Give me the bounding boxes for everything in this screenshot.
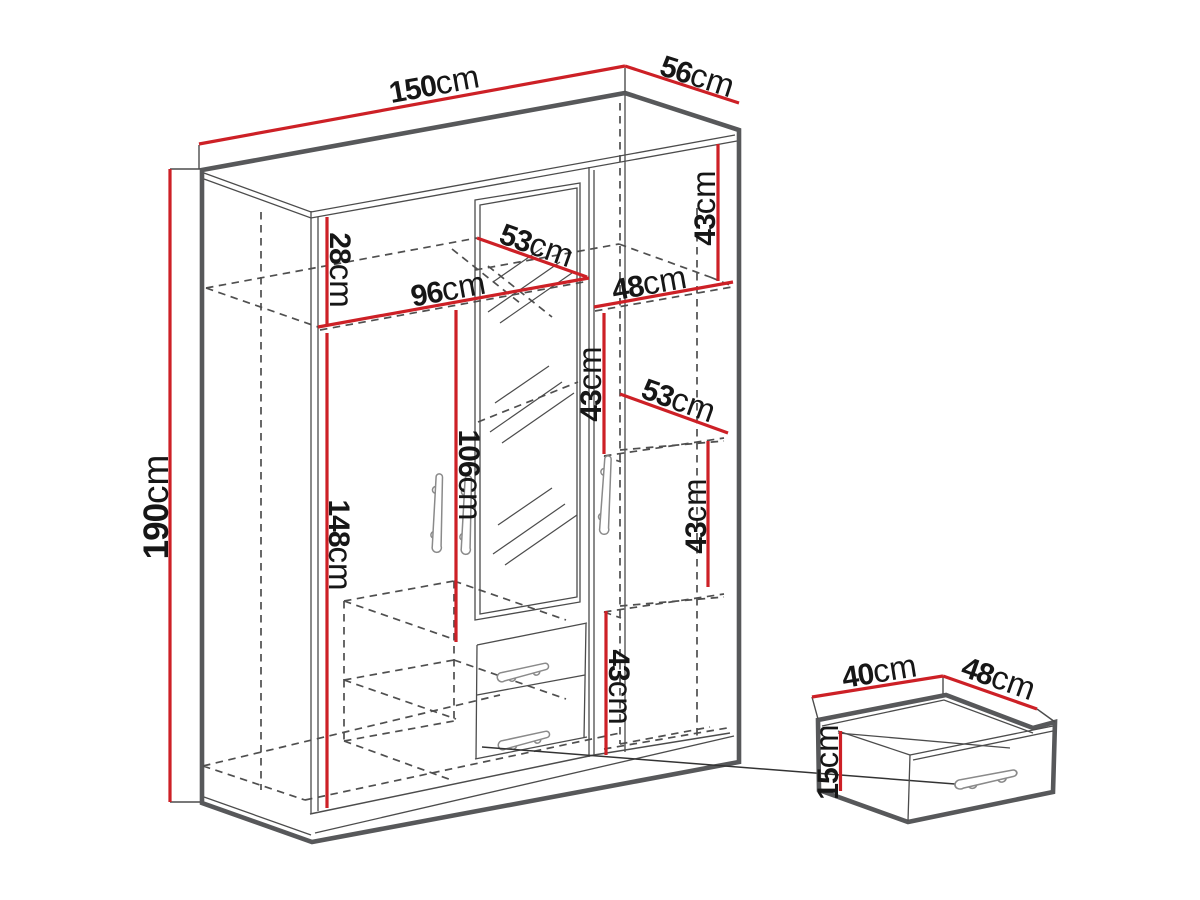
svg-text:43cm: 43cm (571, 346, 608, 421)
svg-text:28cm: 28cm (323, 232, 360, 307)
svg-text:43cm: 43cm (602, 649, 639, 724)
svg-text:190cm: 190cm (135, 455, 176, 560)
svg-text:15cm: 15cm (808, 724, 845, 799)
svg-text:96cm: 96cm (408, 264, 489, 314)
svg-text:48cm: 48cm (957, 647, 1040, 707)
svg-text:43cm: 43cm (676, 478, 713, 553)
svg-text:40cm: 40cm (839, 646, 919, 694)
svg-text:43cm: 43cm (685, 170, 722, 245)
svg-text:53cm: 53cm (637, 369, 720, 429)
svg-text:106cm: 106cm (452, 429, 489, 520)
svg-text:150cm: 150cm (386, 57, 482, 110)
svg-text:148cm: 148cm (322, 499, 359, 590)
svg-text:56cm: 56cm (656, 46, 739, 104)
svg-text:53cm: 53cm (495, 214, 578, 274)
